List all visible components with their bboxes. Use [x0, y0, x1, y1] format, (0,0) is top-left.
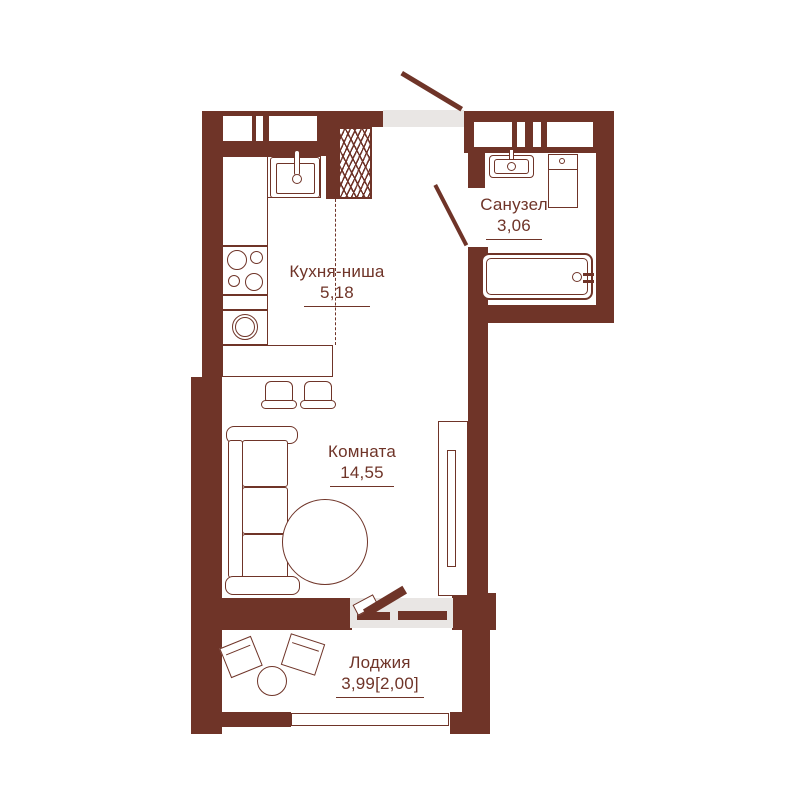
- area-underline: [486, 239, 542, 240]
- entry-door-icon: [400, 71, 463, 111]
- chair-backrest: [224, 641, 250, 655]
- room-area: 5,18: [272, 282, 402, 303]
- kitchen-faucet-icon: [294, 150, 300, 176]
- round-table-icon: [282, 499, 368, 585]
- loggia-chair-icon: [219, 636, 263, 678]
- room-label-kitchen: Кухня-ниша 5,18: [272, 261, 402, 307]
- wall-duct-inset: [256, 116, 263, 141]
- room-area: 3,99[2,00]: [315, 673, 445, 694]
- wardrobe-door: [447, 450, 456, 567]
- burner-icon: [250, 251, 263, 264]
- washing-machine-drum: [235, 317, 255, 337]
- wall: [462, 630, 490, 712]
- kitchen-cabinet: [222, 295, 268, 310]
- room-name: Комната: [297, 441, 427, 462]
- room-name: Лоджия: [315, 652, 445, 673]
- bar-counter: [222, 345, 333, 377]
- kitchen-counter: [222, 156, 268, 246]
- wall-duct-inset: [269, 116, 317, 141]
- wall-duct-inset: [474, 122, 512, 147]
- room-label-living: Комната 14,55: [297, 441, 427, 487]
- room-label-bathroom: Санузел 3,06: [449, 194, 579, 240]
- loggia-window: [291, 713, 449, 726]
- wall-duct-inset: [547, 122, 593, 147]
- floor-plan: Кухня-ниша 5,18 Комната 14,55 Санузел 3,…: [0, 0, 800, 807]
- area-underline: [330, 486, 394, 487]
- burner-icon: [228, 275, 240, 287]
- bathroom-faucet-icon: [507, 162, 516, 171]
- wall: [326, 156, 338, 199]
- wall: [222, 712, 291, 727]
- bathtub-faucet-icon: [583, 280, 594, 283]
- wall: [191, 712, 222, 734]
- wall: [468, 153, 485, 188]
- room-area: 14,55: [297, 462, 427, 483]
- ventilation-shaft-icon: [338, 127, 372, 199]
- room-name: Кухня-ниша: [272, 261, 402, 282]
- wall: [450, 712, 490, 734]
- appliance-knob-icon: [559, 158, 565, 164]
- wall-duct-inset: [517, 122, 525, 147]
- sofa-backrest: [228, 440, 243, 578]
- wall: [191, 377, 222, 712]
- area-underline: [304, 306, 370, 307]
- bar-stool-base: [261, 400, 297, 409]
- sofa-armrest: [225, 576, 300, 595]
- burner-icon: [227, 250, 247, 270]
- balcony-door-sill: [398, 611, 447, 620]
- room-area: 3,06: [449, 215, 579, 236]
- chair-backrest: [292, 638, 320, 651]
- bar-stool-base: [300, 400, 336, 409]
- wall: [596, 111, 614, 323]
- wall-duct-inset: [223, 116, 252, 141]
- room-label-loggia: Лоджия 3,99[2,00]: [315, 652, 445, 698]
- wall-duct-inset: [533, 122, 541, 147]
- loggia-table-icon: [257, 666, 287, 696]
- bathtub-faucet-icon: [572, 272, 582, 282]
- bathtub-faucet-icon: [583, 273, 594, 276]
- wall: [468, 305, 614, 323]
- wall: [452, 593, 496, 630]
- sofa-cushion: [242, 440, 288, 487]
- wall: [191, 598, 352, 630]
- kitchen-faucet-icon: [292, 174, 302, 184]
- bathroom-faucet-icon: [509, 149, 514, 160]
- sofa-cushion: [242, 487, 288, 534]
- room-name: Санузел: [449, 194, 579, 215]
- area-underline: [336, 697, 424, 698]
- entry-threshold: [383, 110, 464, 127]
- burner-icon: [245, 273, 263, 291]
